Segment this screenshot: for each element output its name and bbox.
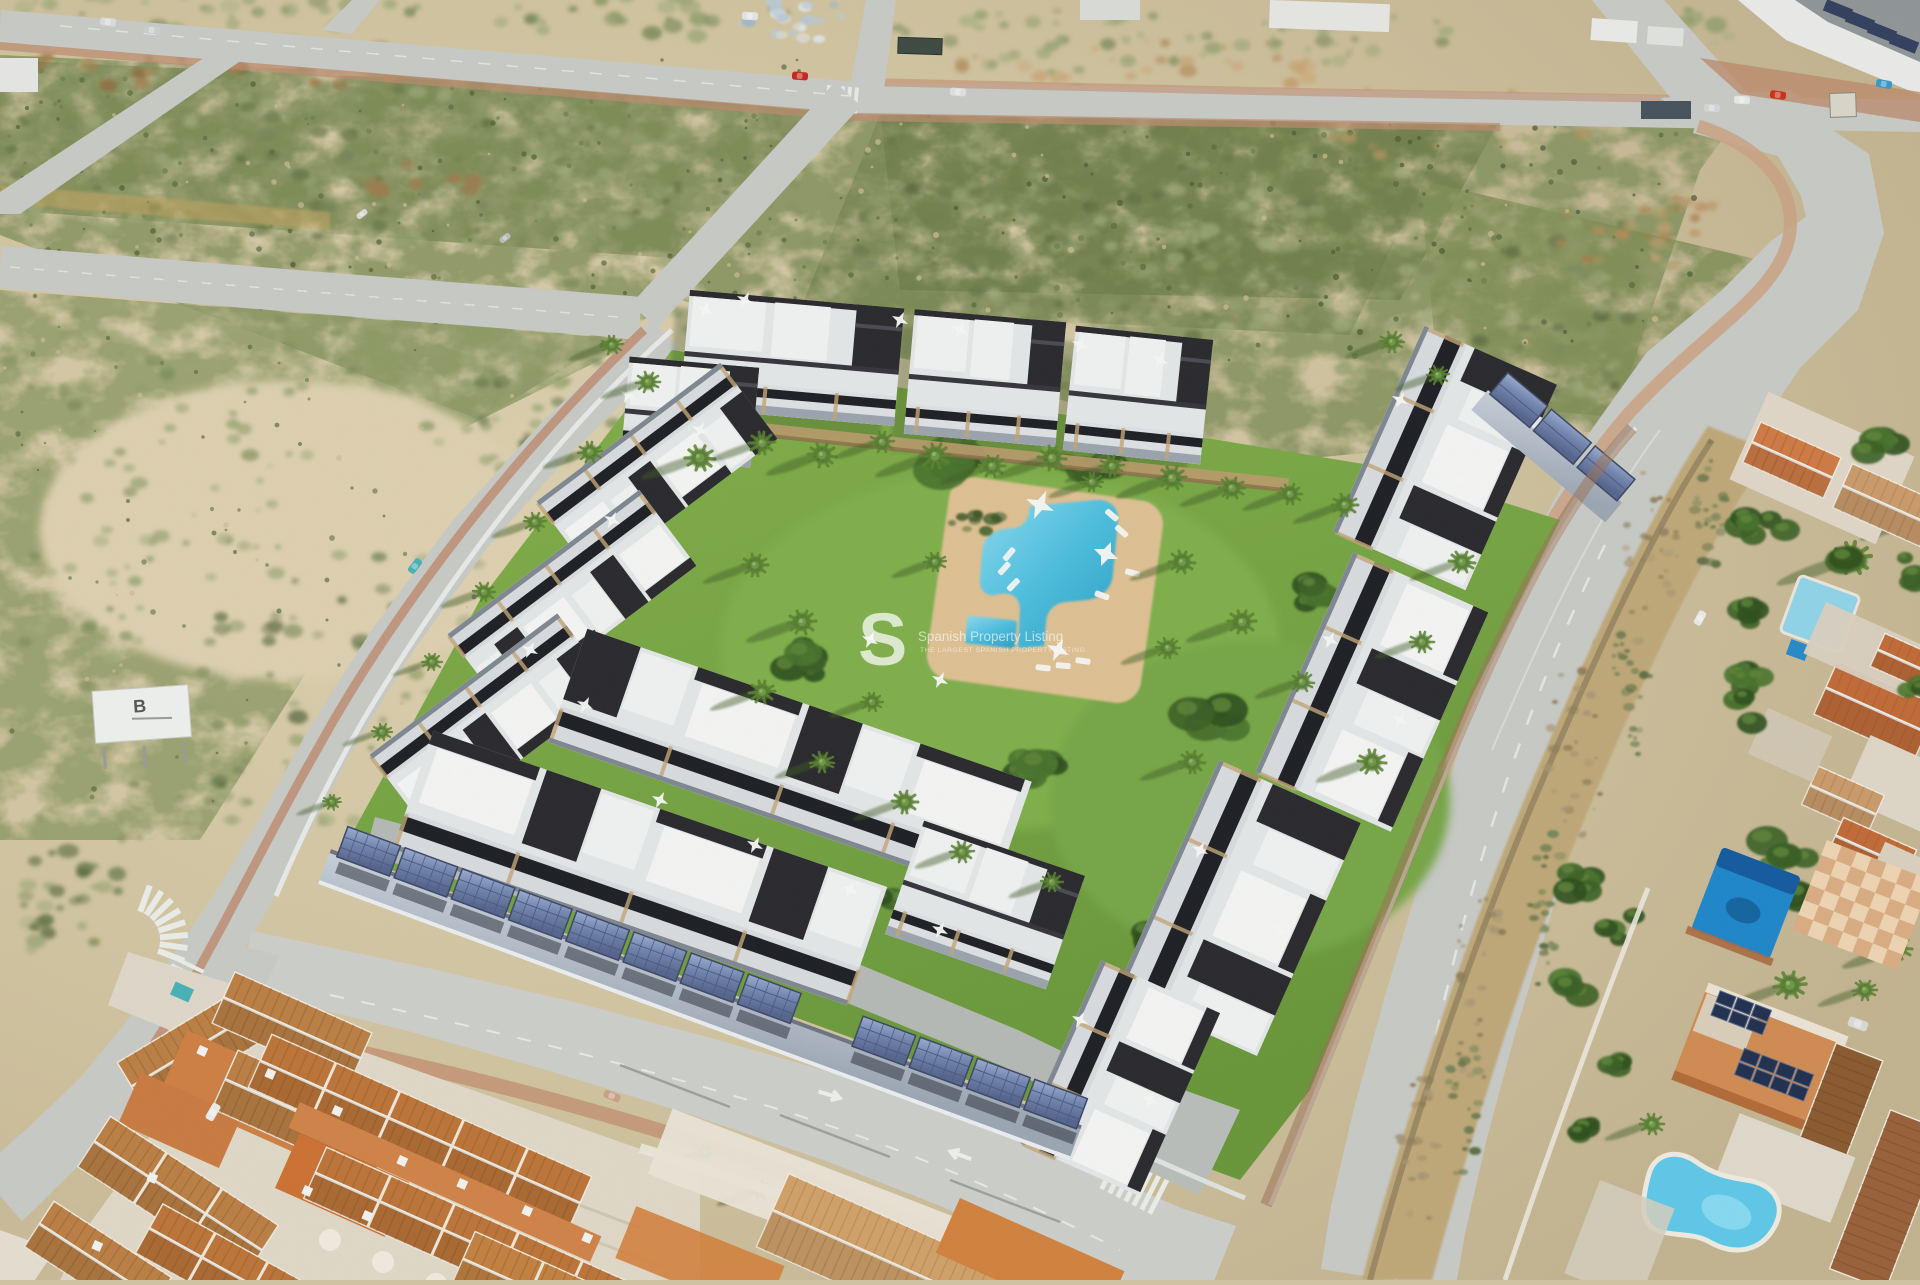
svg-text:THE LARGEST SPANISH PROPERTY L: THE LARGEST SPANISH PROPERTY LISTING (920, 647, 1085, 654)
svg-text:S: S (858, 598, 907, 681)
svg-text:Spanish Property Listing: Spanish Property Listing (918, 629, 1063, 644)
